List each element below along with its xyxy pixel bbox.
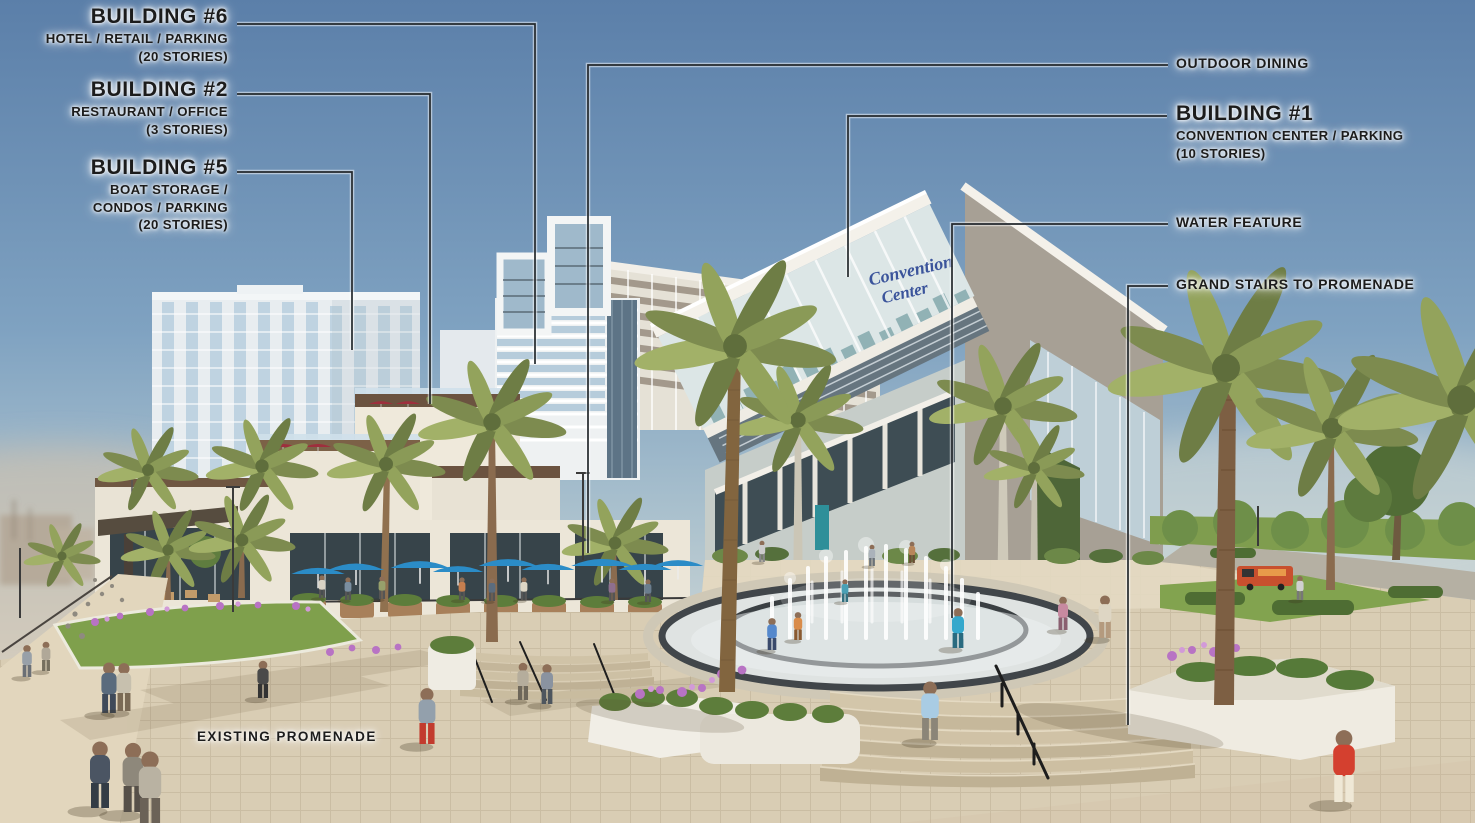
rendering-canvas: Convention Center [0,0,1475,823]
scene-rendering: Convention Center [0,0,1475,823]
